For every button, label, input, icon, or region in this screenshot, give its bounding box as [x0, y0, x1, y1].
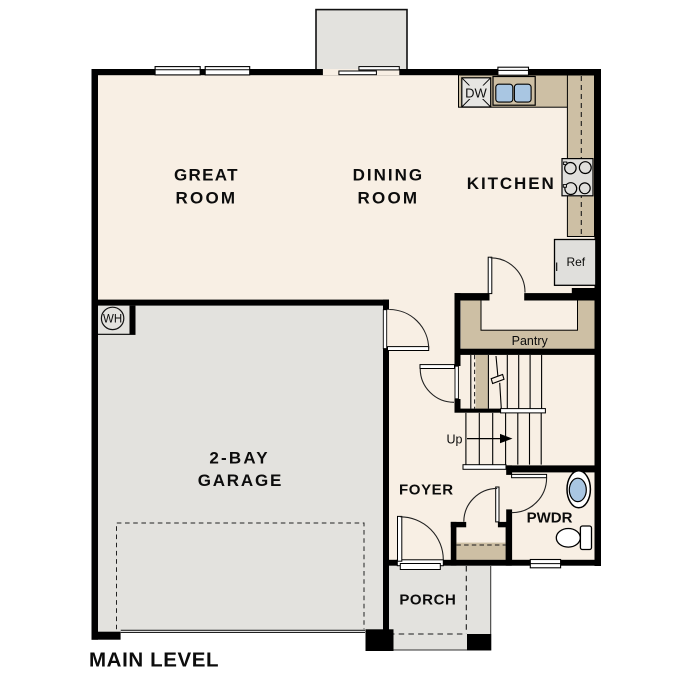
svg-text:GREAT: GREAT: [174, 165, 239, 184]
svg-text:PORCH: PORCH: [399, 592, 456, 609]
svg-text:MAIN LEVEL: MAIN LEVEL: [89, 648, 219, 671]
svg-text:Up: Up: [447, 432, 463, 446]
svg-text:WH: WH: [103, 314, 122, 326]
svg-text:DW: DW: [465, 85, 487, 100]
svg-text:Pantry: Pantry: [512, 334, 549, 348]
svg-text:ROOM: ROOM: [176, 189, 238, 208]
svg-text:ROOM: ROOM: [358, 189, 420, 208]
svg-text:GARAGE: GARAGE: [198, 471, 283, 490]
svg-text:Ref: Ref: [566, 255, 585, 269]
svg-text:KITCHEN: KITCHEN: [467, 174, 556, 193]
svg-text:DINING: DINING: [353, 165, 425, 184]
svg-text:FOYER: FOYER: [399, 482, 454, 499]
svg-text:PWDR: PWDR: [527, 510, 573, 527]
svg-text:2-BAY: 2-BAY: [209, 449, 269, 468]
